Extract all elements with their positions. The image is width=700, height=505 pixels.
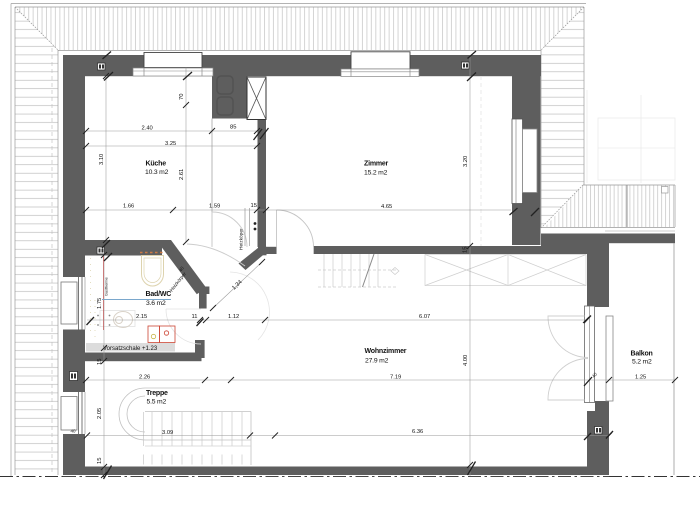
- svg-text:10.3 m2: 10.3 m2: [145, 169, 169, 176]
- svg-text:3.10: 3.10: [99, 154, 105, 165]
- svg-text:3.25: 3.25: [165, 141, 176, 147]
- svg-text:7.19: 7.19: [390, 375, 401, 381]
- svg-text:40: 40: [71, 429, 77, 434]
- svg-text:Balkon: Balkon: [631, 351, 653, 358]
- svg-text:2.61: 2.61: [179, 169, 185, 180]
- svg-text:11: 11: [192, 314, 198, 320]
- svg-text:85: 85: [230, 125, 236, 131]
- svg-text:4.65: 4.65: [381, 204, 392, 210]
- svg-text:1.59: 1.59: [209, 204, 220, 210]
- svg-text:Bad/WC: Bad/WC: [146, 291, 172, 298]
- svg-text:1.66: 1.66: [123, 204, 134, 210]
- svg-text:15: 15: [97, 359, 103, 365]
- svg-text:Zimmer: Zimmer: [364, 160, 389, 167]
- svg-text:Treppe: Treppe: [146, 390, 168, 397]
- svg-text:15: 15: [97, 458, 103, 464]
- svg-text:27.9 m2: 27.9 m2: [365, 357, 389, 364]
- svg-text:Gastherme: Gastherme: [105, 277, 109, 296]
- svg-text:2.40: 2.40: [142, 126, 153, 132]
- svg-text:3.20: 3.20: [463, 156, 469, 167]
- svg-text:1.12: 1.12: [228, 314, 239, 320]
- svg-text:15: 15: [463, 247, 469, 253]
- svg-text:2.15: 2.15: [136, 314, 147, 320]
- svg-text:Heizköper: Heizköper: [239, 228, 245, 250]
- svg-text:3.6 m2: 3.6 m2: [146, 300, 166, 307]
- svg-text:2.26: 2.26: [139, 375, 150, 381]
- svg-text:6.07: 6.07: [419, 314, 430, 320]
- svg-text:5.2 m2: 5.2 m2: [632, 359, 652, 366]
- svg-text:70: 70: [179, 94, 185, 100]
- svg-text:Wohnzimmer: Wohnzimmer: [365, 348, 407, 355]
- svg-text:4.00: 4.00: [463, 355, 469, 366]
- svg-text:6.36: 6.36: [412, 429, 423, 435]
- svg-text:5.5 m2: 5.5 m2: [147, 399, 167, 406]
- svg-text:15.2 m2: 15.2 m2: [364, 170, 388, 177]
- svg-text:15: 15: [251, 203, 257, 209]
- svg-text:3.09: 3.09: [162, 430, 173, 436]
- svg-text:1.75: 1.75: [97, 298, 103, 309]
- svg-text:Küche: Küche: [146, 161, 167, 168]
- svg-text:1.25: 1.25: [635, 375, 646, 381]
- svg-text:2.05: 2.05: [97, 408, 103, 419]
- svg-text:Vorsatzschale +1.23: Vorsatzschale +1.23: [103, 346, 158, 352]
